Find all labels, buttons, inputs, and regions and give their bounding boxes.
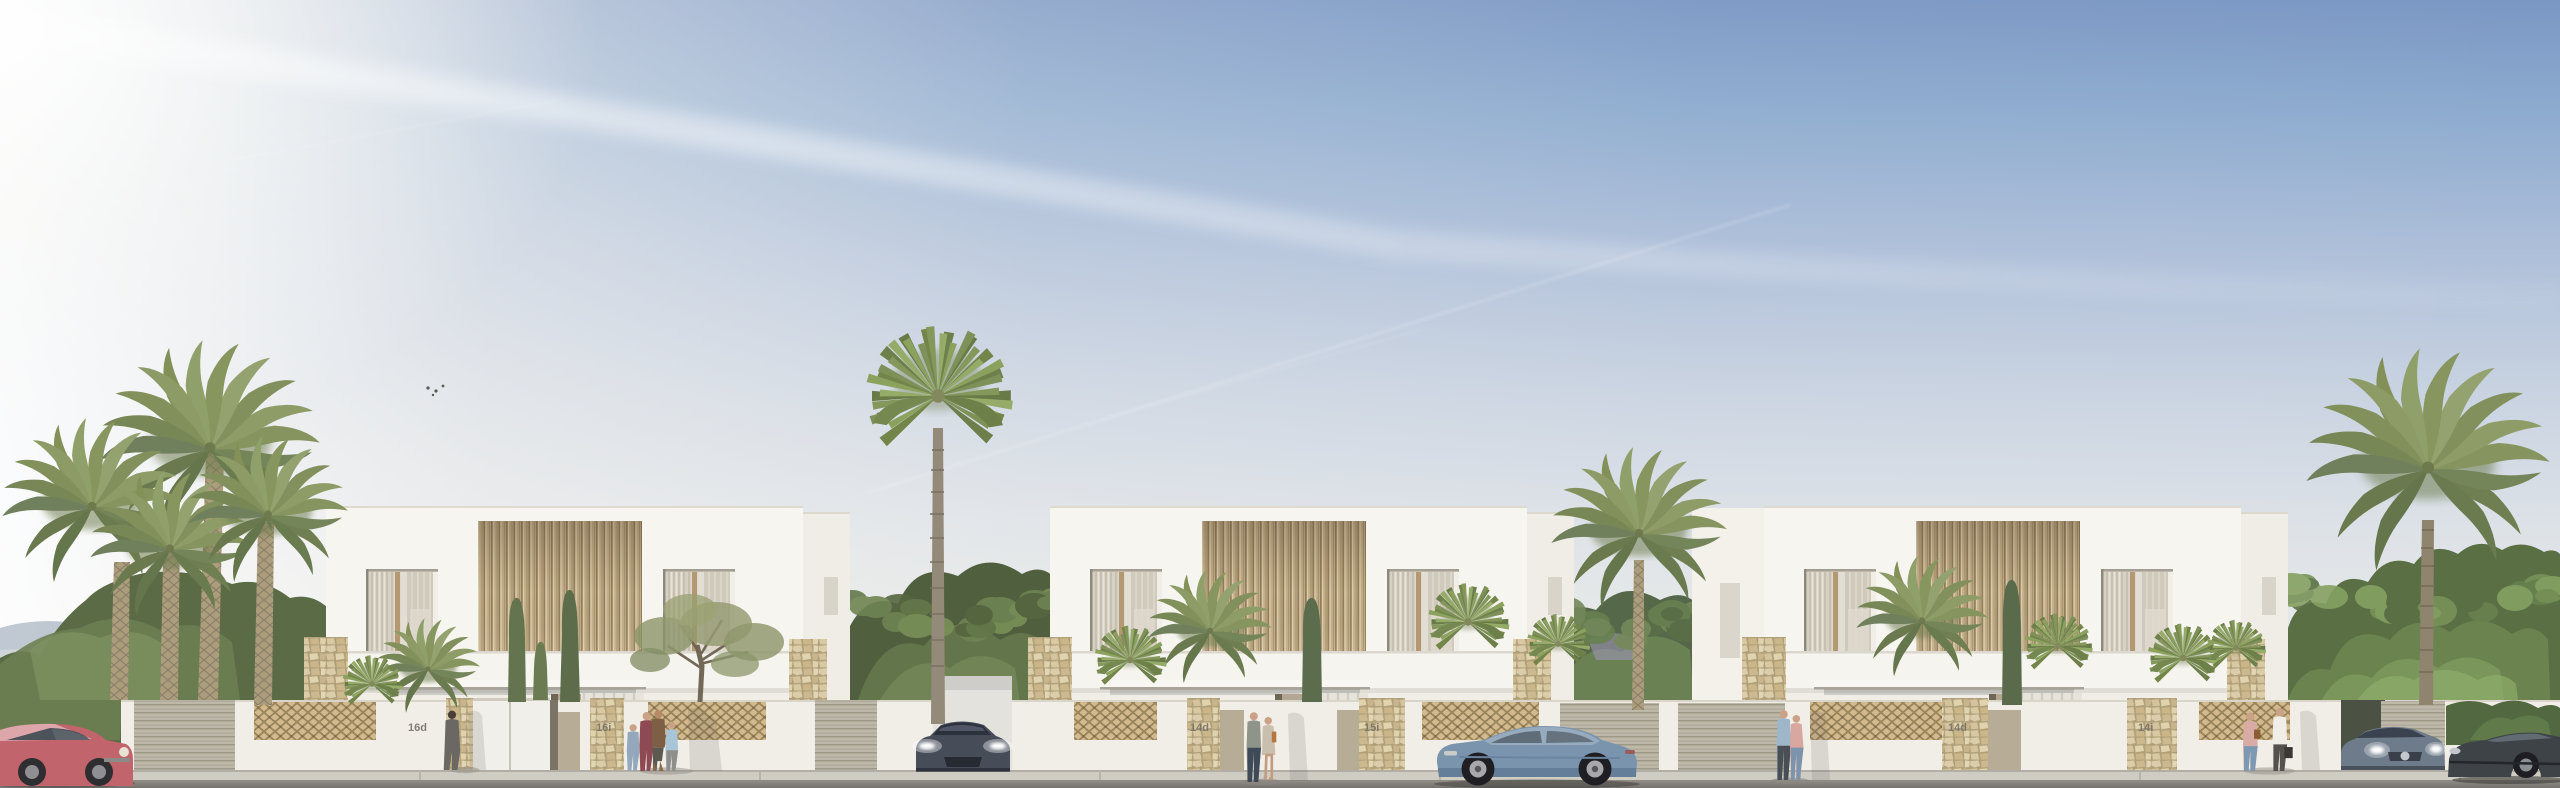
svg-text:14d: 14d bbox=[1190, 722, 1209, 734]
svg-text:15i: 15i bbox=[1364, 722, 1379, 734]
svg-text:16d: 16d bbox=[408, 722, 427, 734]
svg-text:14d: 14d bbox=[1948, 722, 1967, 734]
svg-text:14i: 14i bbox=[2138, 722, 2153, 734]
svg-text:16i: 16i bbox=[596, 722, 611, 734]
